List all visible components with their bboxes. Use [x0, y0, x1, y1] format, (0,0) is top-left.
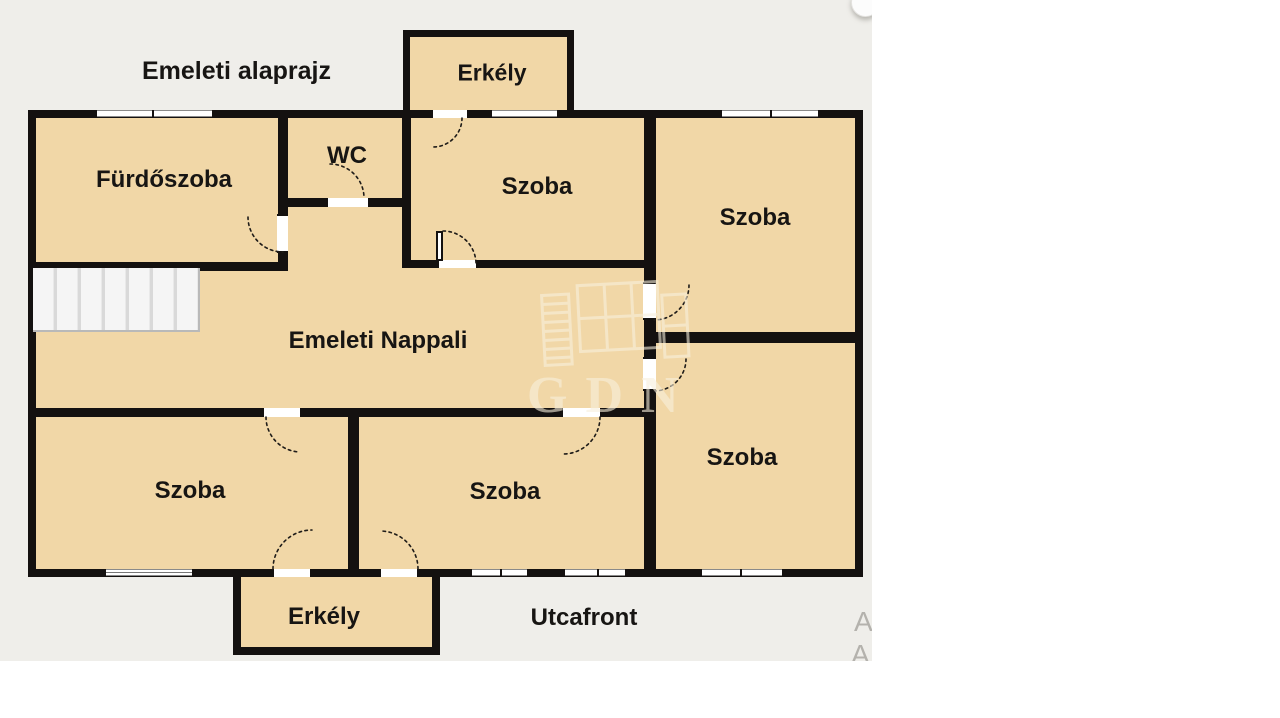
door-opening	[431, 110, 469, 119]
door-opening	[277, 214, 288, 253]
cropped-text-line: A	[854, 606, 872, 638]
window-divider	[597, 569, 599, 576]
wall	[402, 117, 411, 268]
room-label-living-room: Emeleti Nappali	[289, 327, 468, 355]
room-label-room-bottom-right: Szoba	[707, 444, 778, 472]
wall	[348, 417, 359, 569]
room-label-balcony-top: Erkély	[457, 60, 526, 87]
street-front-label: Utcafront	[531, 604, 638, 632]
room-label-room-top-right: Szoba	[720, 204, 791, 232]
door-opening	[262, 408, 302, 418]
room-label-bathroom: Fürdőszoba	[96, 166, 232, 194]
window	[565, 569, 625, 576]
room-label-wc: WC	[327, 142, 367, 170]
wall	[644, 332, 863, 343]
window	[106, 569, 192, 576]
window	[702, 569, 782, 576]
cropped-circle-button[interactable]	[851, 0, 872, 17]
window-divider	[770, 110, 772, 117]
window	[722, 110, 818, 117]
door-opening	[643, 282, 656, 320]
room-label-balcony-bottom: Erkély	[288, 603, 360, 631]
plan-title: Emeleti alaprajz	[142, 57, 331, 86]
window-divider	[740, 569, 742, 576]
door-opening	[326, 198, 370, 208]
window	[492, 110, 557, 117]
door-opening	[643, 357, 656, 391]
door-opening	[272, 569, 312, 578]
wall	[644, 117, 656, 577]
screenshot-canvas: Emeleti alaprajz	[0, 0, 1280, 718]
window-divider	[500, 569, 502, 576]
room-label-room-top-middle: Szoba	[502, 173, 573, 201]
door-leaf	[436, 231, 443, 261]
window-divider	[152, 110, 154, 117]
stairs	[33, 268, 200, 332]
cropped-text-line: A	[851, 639, 870, 661]
room-label-room-bottom-left: Szoba	[155, 477, 226, 505]
door-opening	[379, 569, 419, 578]
floor-plan: Emeleti alaprajz	[0, 0, 872, 661]
window	[97, 110, 212, 117]
room-label-room-bottom-middle: Szoba	[470, 478, 541, 506]
door-opening	[561, 408, 602, 418]
door-opening	[437, 260, 478, 269]
window-divider	[106, 572, 192, 573]
window	[472, 569, 527, 576]
